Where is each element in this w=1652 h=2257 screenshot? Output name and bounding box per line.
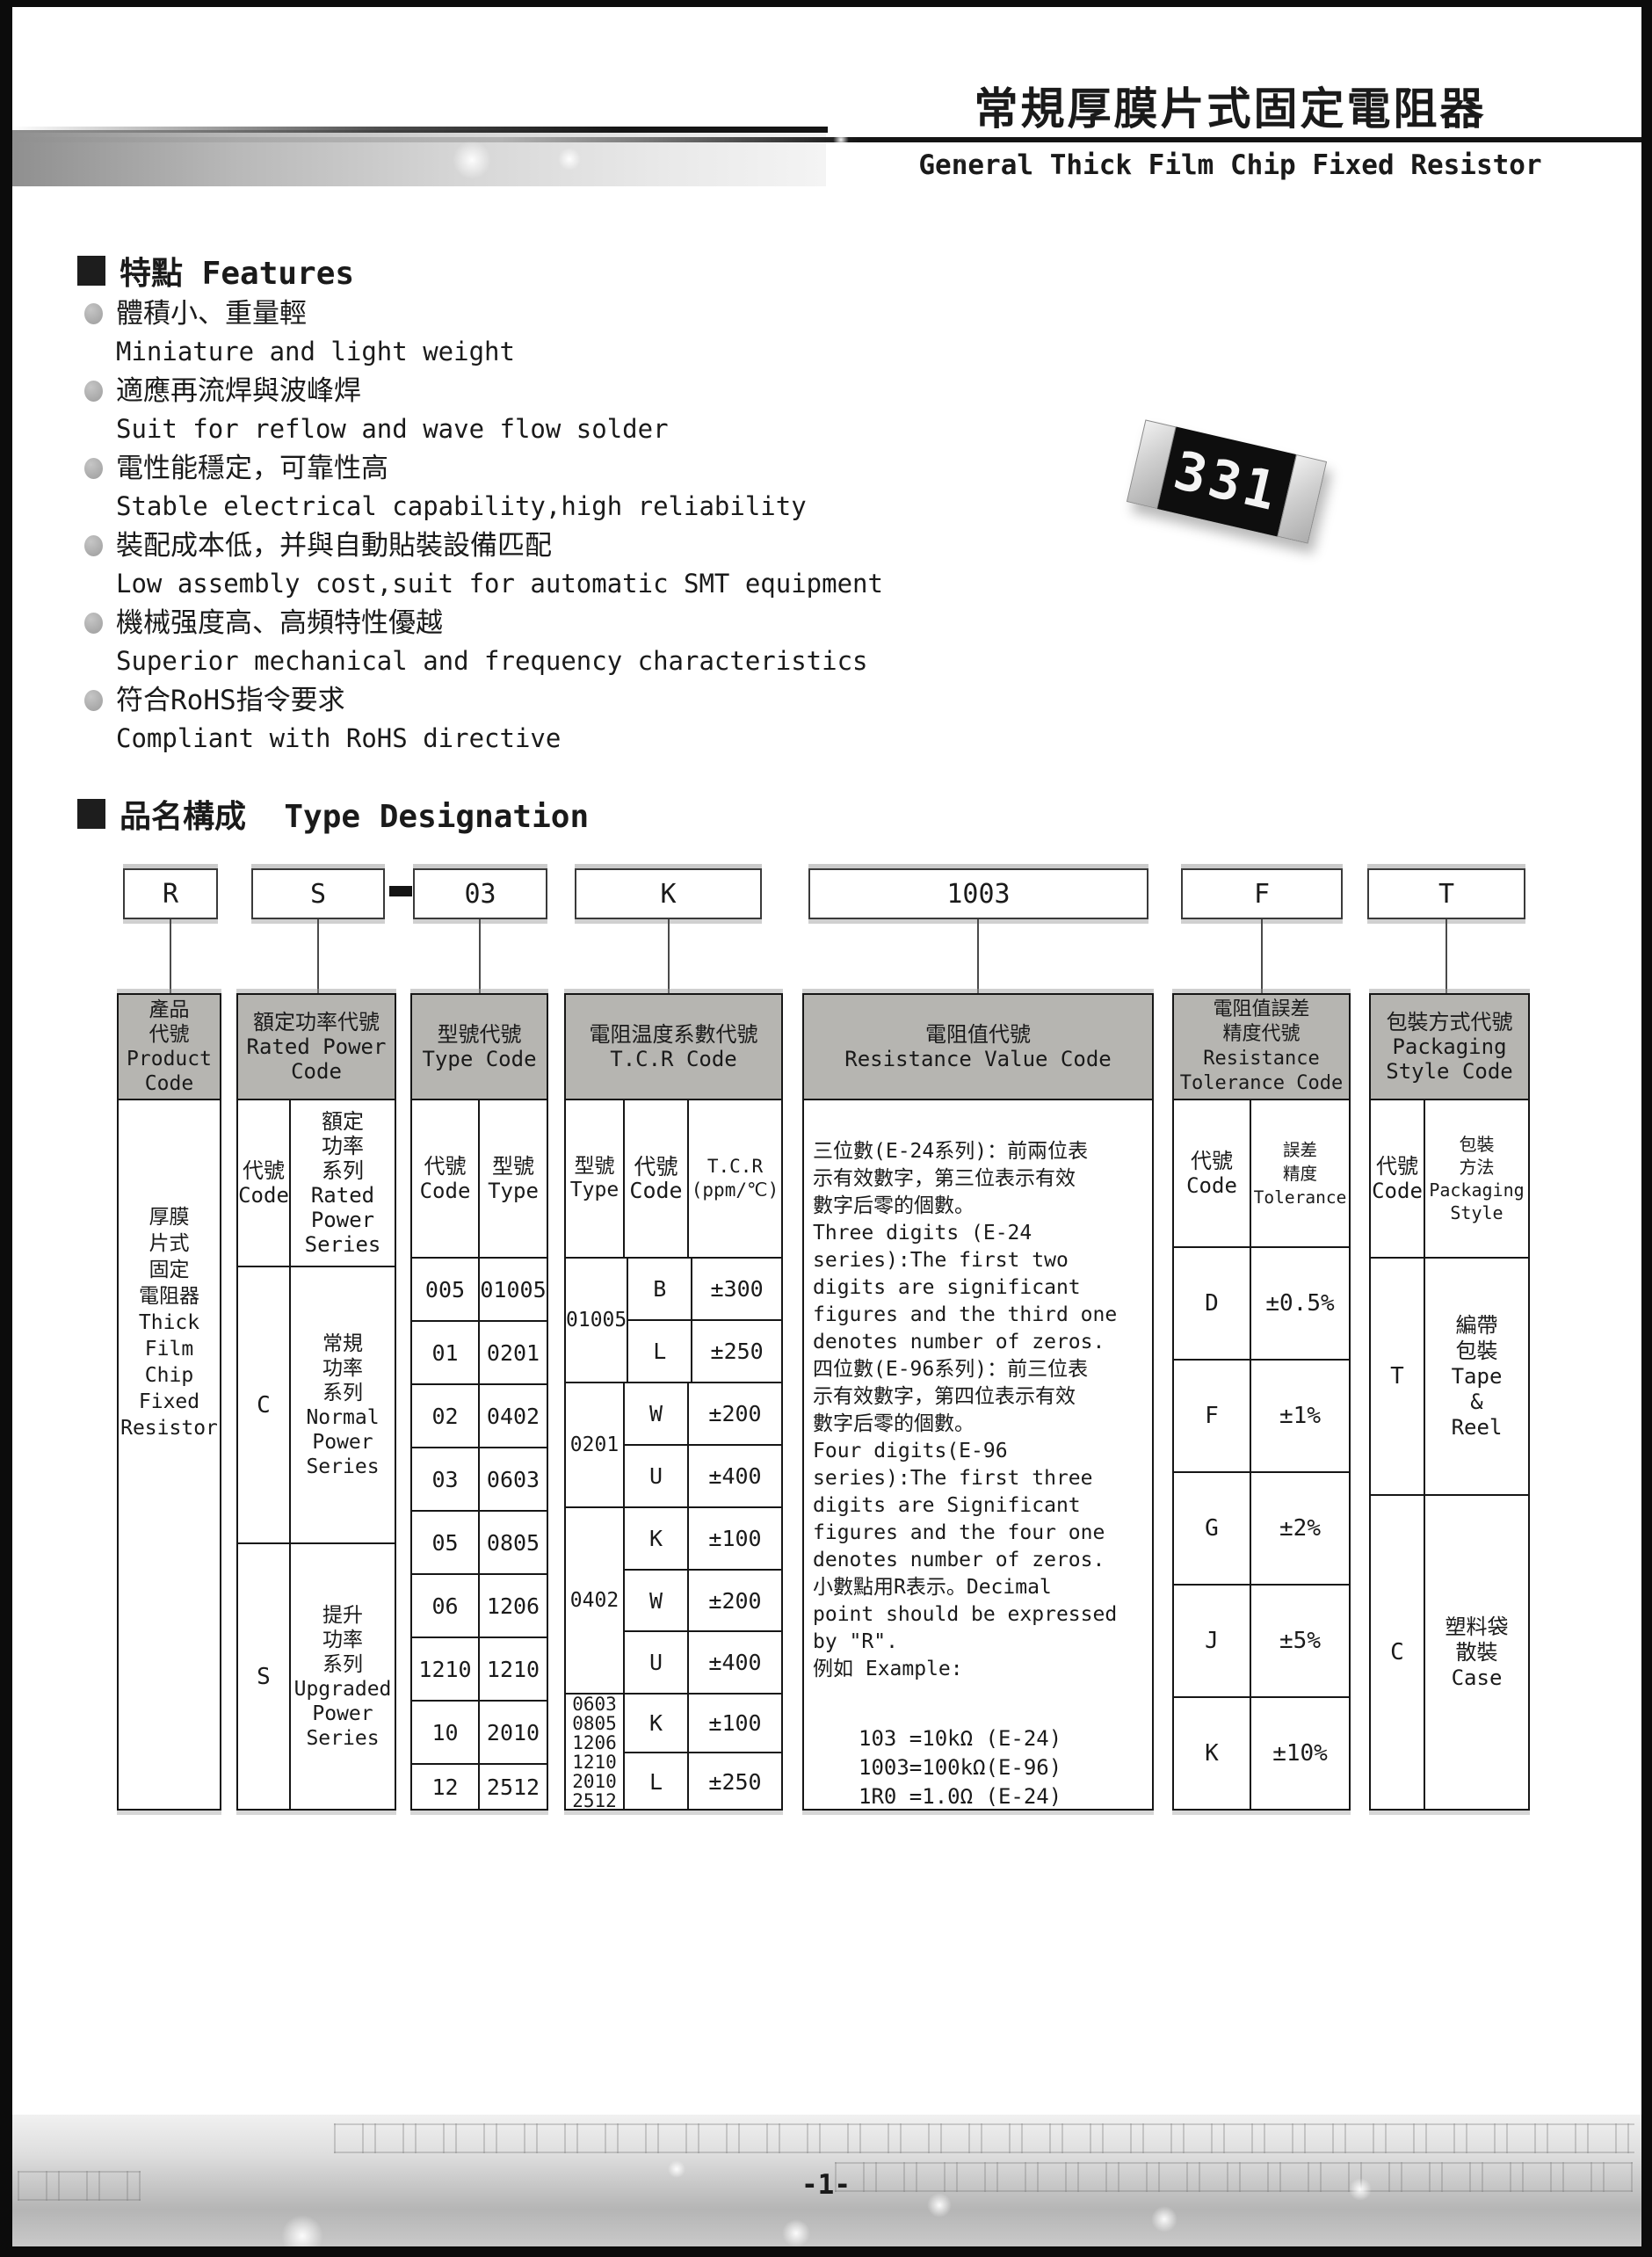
subheader-type: 型號 Type [566, 1100, 623, 1257]
footer-squares-decoration [18, 2171, 141, 2201]
sparkle-decoration [896, 156, 910, 171]
code-separator-dash [389, 886, 412, 896]
code-box-tolerance: F [1181, 868, 1343, 919]
features-heading-label: 特點 Features [120, 248, 354, 294]
table-row: 005 01005 [412, 1257, 547, 1320]
tcr-value: ±400 [687, 1446, 781, 1506]
footer-squares-decoration [334, 2123, 1634, 2153]
features-section-heading: 特點 Features [77, 248, 354, 294]
table-row: D ±0.5% [1174, 1246, 1349, 1359]
tcr-group: 01005 B ±300 L ±250 [566, 1257, 781, 1382]
tcr-code: L [625, 1753, 687, 1811]
feature-text-en: Suit for reflow and wave flow solder [116, 410, 1104, 448]
type-size-cell: 1210 [478, 1638, 547, 1700]
sparkle-decoration [1349, 2178, 1372, 2201]
product-code-body: 厚膜 片式 固定 電阻器 Thick Film Chip Fixed Resis… [119, 1100, 220, 1809]
features-list: 體積小、重量輕 Miniature and light weight 適應再流焊… [84, 295, 1104, 759]
tcr-value: ±400 [687, 1632, 781, 1693]
tolerance-code: G [1174, 1473, 1250, 1584]
type-size-cell: 1206 [478, 1575, 547, 1637]
sparkle-decoration [1151, 2206, 1177, 2232]
table-row: W ±200 [625, 1569, 781, 1631]
subheader-row: 代號 Code 誤差 精度 Tolerance [1174, 1100, 1349, 1246]
type-code-cell: 01 [412, 1322, 478, 1383]
column-header: 包裝方式代號 Packaging Style Code [1371, 995, 1528, 1100]
table-row: K ±100 [625, 1695, 781, 1752]
feature-item: 體積小、重量輕 Miniature and light weight [84, 295, 1104, 371]
sparkle-decoration [956, 149, 968, 162]
tolerance-code: J [1174, 1586, 1250, 1696]
column-product-code: 產品 代號 Product Code 厚膜 片式 固定 電阻器 Thick Fi… [117, 993, 221, 1811]
tcr-value: ±300 [691, 1259, 781, 1319]
tcr-type: 0402 [566, 1508, 623, 1693]
type-size-cell: 2512 [478, 1765, 547, 1809]
subheader-code: 代號 Code [623, 1100, 687, 1257]
table-row: S 提升 功率 系列 Upgraded Power Series [238, 1542, 395, 1809]
tcr-value: ±100 [687, 1695, 781, 1752]
table-row: 10 2010 [412, 1700, 547, 1763]
table-row: J ±5% [1174, 1584, 1349, 1696]
connector-line [1261, 919, 1263, 993]
type-code-cell: 12 [412, 1765, 478, 1809]
table-row: W ±200 [625, 1383, 781, 1444]
subheader-row: 代號 Code 包裝 方法 Packaging Style [1371, 1100, 1528, 1257]
sparkle-decoration [558, 148, 581, 171]
sparkle-decoration [281, 2215, 323, 2257]
table-row: 06 1206 [412, 1573, 547, 1637]
subheader-style: 包裝 方法 Packaging Style [1424, 1100, 1528, 1257]
type-designation-heading-label: 品名構成 Type Designation [120, 791, 589, 837]
tolerance-value: ±10% [1250, 1698, 1349, 1809]
connector-line [1445, 919, 1447, 993]
subheader-tolerance: 誤差 精度 Tolerance [1250, 1100, 1349, 1246]
connector-line [668, 919, 670, 993]
code-box-packaging: T [1367, 868, 1525, 919]
subheader-code: 代號 Code [1174, 1100, 1250, 1246]
table-row: 1210 1210 [412, 1637, 547, 1700]
feature-text-en: Miniature and light weight [116, 333, 1104, 371]
bullet-icon [84, 535, 103, 556]
connector-line [479, 919, 481, 993]
connector-line [170, 919, 171, 993]
sparkle-decoration [782, 2219, 810, 2247]
tcr-code: W [625, 1571, 687, 1631]
resistance-value-text: 三位數(E-24系列)：前兩位表 示有效數字，第三位表示有效 數字后零的個數。 … [813, 1138, 1143, 1683]
tcr-code: L [628, 1321, 691, 1382]
table-row: 03 0603 [412, 1447, 547, 1510]
feature-text-en: Compliant with RoHS directive [116, 720, 1104, 758]
title-rule [11, 137, 1641, 142]
table-row: U ±400 [625, 1444, 781, 1506]
table-row: 02 0402 [412, 1383, 547, 1447]
tolerance-code: D [1174, 1248, 1250, 1359]
table-row: G ±2% [1174, 1471, 1349, 1584]
feature-text-cn: 裝配成本低，并與自動貼裝設備匹配 [116, 527, 552, 565]
subheader-code: 代號 Code [238, 1100, 289, 1266]
tolerance-code: F [1174, 1361, 1250, 1471]
feature-item: 符合RoHS指令要求 Compliant with RoHS directive [84, 682, 1104, 758]
packaging-code: C [1371, 1496, 1424, 1809]
column-header: 額定功率代號 Rated Power Code [238, 995, 395, 1100]
column-header: 型號代號 Type Code [412, 995, 547, 1100]
column-tcr: 電阻温度系數代號 T.C.R Code 型號 Type 代號 Code T.C.… [564, 993, 783, 1811]
column-packaging: 包裝方式代號 Packaging Style Code 代號 Code 包裝 方… [1369, 993, 1530, 1811]
type-designation-section-heading: 品名構成 Type Designation [77, 791, 589, 837]
tolerance-value: ±0.5% [1250, 1248, 1349, 1359]
feature-text-cn: 符合RoHS指令要求 [116, 682, 345, 720]
power-code: C [238, 1267, 289, 1542]
table-row: K ±10% [1174, 1696, 1349, 1809]
type-size-cell: 0603 [478, 1448, 547, 1510]
heading-square-icon [77, 256, 105, 286]
feature-item: 電性能穩定，可靠性高 Stable electrical capability,… [84, 450, 1104, 526]
column-resistance-value: 電阻值代號 Resistance Value Code 三位數(E-24系列)：… [802, 993, 1154, 1811]
table-row: U ±400 [625, 1630, 781, 1693]
tolerance-code: K [1174, 1698, 1250, 1809]
bullet-icon [84, 690, 103, 711]
tcr-code: K [625, 1695, 687, 1752]
table-row: L ±250 [625, 1752, 781, 1811]
power-series: 常規 功率 系列 Normal Power Series [289, 1267, 395, 1542]
code-box-type: 03 [413, 868, 547, 919]
tcr-value: ±200 [687, 1383, 781, 1444]
table-row: C 塑料袋 散裝 Case [1371, 1494, 1528, 1809]
tcr-code: W [625, 1383, 687, 1444]
tcr-code: U [625, 1632, 687, 1693]
tcr-code: U [625, 1446, 687, 1506]
table-row: F ±1% [1174, 1359, 1349, 1471]
tcr-value: ±250 [691, 1321, 781, 1382]
type-size-cell: 0805 [478, 1512, 547, 1573]
code-box-product: R [123, 868, 218, 919]
resistance-value-examples: 103 =10kΩ (E-24) 1003=100kΩ(E-96) 1R0 =1… [813, 1724, 1143, 1811]
tcr-group: 0402 K ±100 W ±200 U ±400 [566, 1506, 781, 1693]
sparkle-decoration [453, 141, 491, 179]
tcr-code: K [625, 1508, 687, 1569]
page-title-en: General Thick Film Chip Fixed Resistor [826, 149, 1634, 181]
code-box-power: S [251, 868, 385, 919]
code-box-tcr: K [575, 868, 762, 919]
resistance-value-description: 三位數(E-24系列)：前兩位表 示有效數字，第三位表示有效 數字后零的個數。 … [804, 1100, 1152, 1849]
subheader-tcr: T.C.R (ppm/℃) [687, 1100, 781, 1257]
feature-text-cn: 機械强度高、高頻特性優越 [116, 605, 443, 642]
type-code-cell: 10 [412, 1702, 478, 1763]
column-header: 電阻值代號 Resistance Value Code [804, 995, 1152, 1100]
feature-text-en: Stable electrical capability,high reliab… [116, 488, 1104, 526]
column-type-code: 型號代號 Type Code 代號 Code 型號 Type 005 01005… [410, 993, 548, 1811]
page-number: -1- [694, 2169, 958, 2201]
sparkle-decoration [668, 2160, 685, 2178]
type-size-cell: 01005 [478, 1259, 547, 1320]
column-tolerance: 電阻值誤差 精度代號 Resistance Tolerance Code 代號 … [1172, 993, 1351, 1811]
packaging-style: 塑料袋 散裝 Case [1424, 1496, 1528, 1809]
table-row: B ±300 [628, 1259, 781, 1319]
tcr-type: 0603 0805 1206 1210 2010 2512 [566, 1695, 623, 1811]
tolerance-value: ±1% [1250, 1361, 1349, 1471]
tcr-type: 01005 [566, 1259, 627, 1382]
subheader-type: 型號 Type [478, 1100, 547, 1257]
power-series: 提升 功率 系列 Upgraded Power Series [289, 1544, 395, 1809]
sparkle-decoration [833, 132, 849, 148]
type-code-cell: 02 [412, 1385, 478, 1447]
table-row: C 常規 功率 系列 Normal Power Series [238, 1266, 395, 1542]
column-header: 電阻值誤差 精度代號 Resistance Tolerance Code [1174, 995, 1349, 1100]
code-box-resistance: 1003 [808, 868, 1148, 919]
chip-resistor-image: 331 [1127, 419, 1327, 543]
bullet-icon [84, 381, 103, 402]
feature-item: 裝配成本低，并與自動貼裝設備匹配 Low assembly cost,suit … [84, 527, 1104, 603]
header-band-edge [11, 127, 828, 133]
type-size-cell: 2010 [478, 1702, 547, 1763]
subheader-code: 代號 Code [1371, 1100, 1424, 1257]
tcr-value: ±250 [687, 1753, 781, 1811]
table-row: 05 0805 [412, 1510, 547, 1573]
tcr-value: ±100 [687, 1508, 781, 1569]
type-size-cell: 0201 [478, 1322, 547, 1383]
table-row: K ±100 [625, 1508, 781, 1569]
feature-text-cn: 電性能穩定，可靠性高 [116, 450, 388, 488]
subheader-row: 代號 Code 額定 功率 系列 Rated Power Series [238, 1100, 395, 1266]
tolerance-value: ±2% [1250, 1473, 1349, 1584]
datasheet-page: 常規厚膜片式固定電阻器 General Thick Film Chip Fixe… [0, 0, 1652, 2257]
connector-line [317, 919, 319, 993]
type-code-cell: 05 [412, 1512, 478, 1573]
table-row: L ±250 [628, 1319, 781, 1382]
feature-item: 機械强度高、高頻特性優越 Superior mechanical and fre… [84, 605, 1104, 680]
feature-item: 適應再流焊與波峰焊 Suit for reflow and wave flow … [84, 373, 1104, 448]
type-size-cell: 0402 [478, 1385, 547, 1447]
packaging-code: T [1371, 1259, 1424, 1494]
tcr-value: ±200 [687, 1571, 781, 1631]
tcr-code: B [628, 1259, 691, 1319]
column-header: 產品 代號 Product Code [119, 995, 220, 1100]
subheader-row: 代號 Code 型號 Type [412, 1100, 547, 1257]
type-code-cell: 1210 [412, 1638, 478, 1700]
heading-square-icon [77, 799, 105, 829]
tcr-group: 0201 W ±200 U ±400 [566, 1382, 781, 1506]
feature-text-cn: 體積小、重量輕 [116, 295, 307, 333]
bullet-icon [84, 458, 103, 479]
resistor-marking: 331 [1157, 426, 1296, 536]
page-title-cn: 常規厚膜片式固定電阻器 [826, 74, 1634, 137]
connector-line [977, 919, 979, 993]
bullet-icon [84, 303, 103, 324]
subheader-row: 型號 Type 代號 Code T.C.R (ppm/℃) [566, 1100, 781, 1257]
table-row: 12 2512 [412, 1763, 547, 1809]
packaging-style: 編帶 包裝 Tape & Reel [1424, 1259, 1528, 1494]
table-row: 01 0201 [412, 1320, 547, 1383]
type-code-cell: 06 [412, 1575, 478, 1637]
type-code-cell: 005 [412, 1259, 478, 1320]
feature-text-cn: 適應再流焊與波峰焊 [116, 373, 361, 410]
table-row: T 編帶 包裝 Tape & Reel [1371, 1257, 1528, 1494]
type-code-cell: 03 [412, 1448, 478, 1510]
tcr-type: 0201 [566, 1383, 623, 1506]
subheader-code: 代號 Code [412, 1100, 478, 1257]
subheader-series: 額定 功率 系列 Rated Power Series [289, 1100, 395, 1266]
tolerance-value: ±5% [1250, 1586, 1349, 1696]
power-code: S [238, 1544, 289, 1809]
bullet-icon [84, 613, 103, 634]
feature-text-en: Superior mechanical and frequency charac… [116, 642, 1104, 680]
tcr-group: 0603 0805 1206 1210 2010 2512 K ±100 L ±… [566, 1693, 781, 1811]
column-header: 電阻温度系數代號 T.C.R Code [566, 995, 781, 1100]
column-rated-power: 額定功率代號 Rated Power Code 代號 Code 額定 功率 系列… [236, 993, 396, 1811]
feature-text-en: Low assembly cost,suit for automatic SMT… [116, 565, 1104, 603]
